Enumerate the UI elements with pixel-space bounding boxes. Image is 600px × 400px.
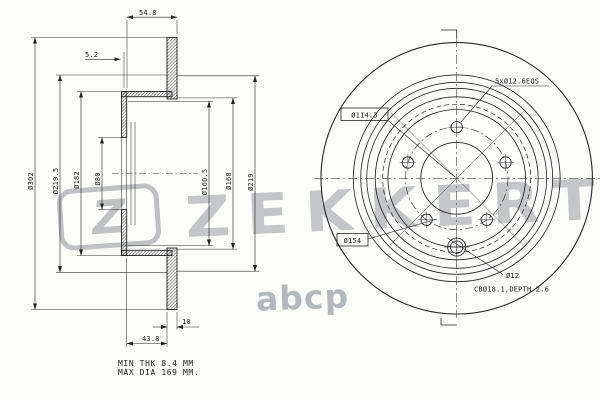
label-pin-hole: Ø12 — [506, 272, 519, 280]
dim-outer-diameter: Ø302 — [27, 172, 35, 190]
dimension-lines — [35, 17, 255, 343]
dim-d168: Ø168 — [225, 172, 233, 190]
dim-width-total: 54.8 — [139, 9, 157, 17]
dim-d182: Ø182 — [73, 171, 81, 189]
label-bolt-holes: 5xØ12.6EQS — [495, 78, 539, 86]
technical-drawing: Z ZEKKERT abcp — [0, 0, 600, 400]
dim-d219-5: Ø219.5 — [52, 168, 60, 195]
note-min-thickness: MIN THK 8.4 MM — [118, 359, 194, 368]
front-view: 5xØ12.6EQS Ø114.3 Ø154 Ø12 CBØ18.1,DEPTH… — [314, 30, 600, 325]
dim-flange-thickness: 5.2 — [85, 51, 98, 59]
drawing-canvas: 54.8 5.2 Ø302 Ø219.5 Ø182 Ø80 Ø160.5 Ø16… — [0, 0, 600, 400]
label-counterbore: CBØ18.1,DEPTH 2.6 — [474, 286, 549, 294]
label-bolt-circle: Ø114.3 — [351, 111, 378, 119]
dimension-labels: 54.8 5.2 Ø302 Ø219.5 Ø182 Ø80 Ø160.5 Ø16… — [27, 9, 255, 343]
front-centerlines — [314, 30, 600, 325]
section-view: 54.8 5.2 Ø302 Ø219.5 Ø182 Ø80 Ø160.5 Ø16… — [27, 9, 259, 377]
dim-offset: 43.8 — [142, 335, 160, 343]
bolt-hole — [400, 154, 416, 170]
dim-d160-5: Ø160.5 — [201, 169, 209, 196]
dim-center-bore: Ø80 — [94, 172, 102, 185]
dim-disc-thickness: 10 — [182, 318, 191, 326]
bolt-hole — [497, 154, 513, 170]
section-notes: MIN THK 8.4 MM MAX DIA 169 MM. — [118, 359, 199, 377]
note-max-diameter: MAX DIA 169 MM. — [118, 368, 199, 377]
bolt-hole — [449, 119, 465, 135]
label-pin-circle: Ø154 — [344, 237, 362, 245]
dim-d219: Ø219 — [247, 173, 255, 191]
